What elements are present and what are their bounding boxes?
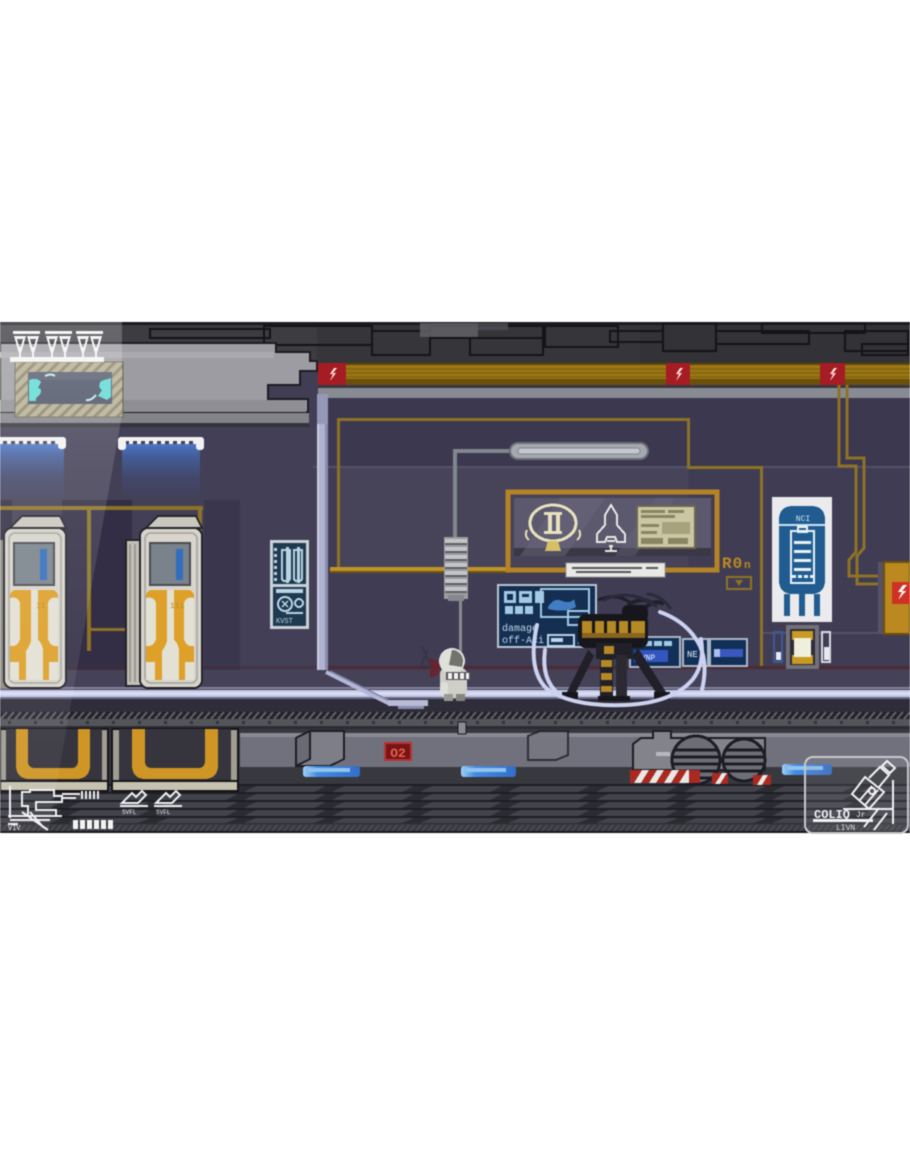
svg-text:NCI: NCI — [796, 515, 810, 524]
svg-text:O2: O2 — [390, 746, 406, 761]
svg-text:111: 111 — [170, 602, 185, 611]
svg-text:off-Aci: off-Aci — [502, 635, 544, 647]
svg-text:damage: damage — [502, 623, 538, 635]
svg-text:R0: R0 — [722, 555, 743, 573]
svg-text:LIVN: LIVN — [836, 824, 855, 833]
svg-text:KVST: KVST — [276, 618, 293, 626]
svg-text:SVFL: SVFL — [122, 809, 137, 816]
svg-text:SVFL: SVFL — [156, 809, 171, 816]
svg-text:Jr: Jr — [856, 811, 866, 820]
svg-text:NE: NE — [687, 650, 698, 660]
svg-text:n: n — [744, 560, 751, 572]
